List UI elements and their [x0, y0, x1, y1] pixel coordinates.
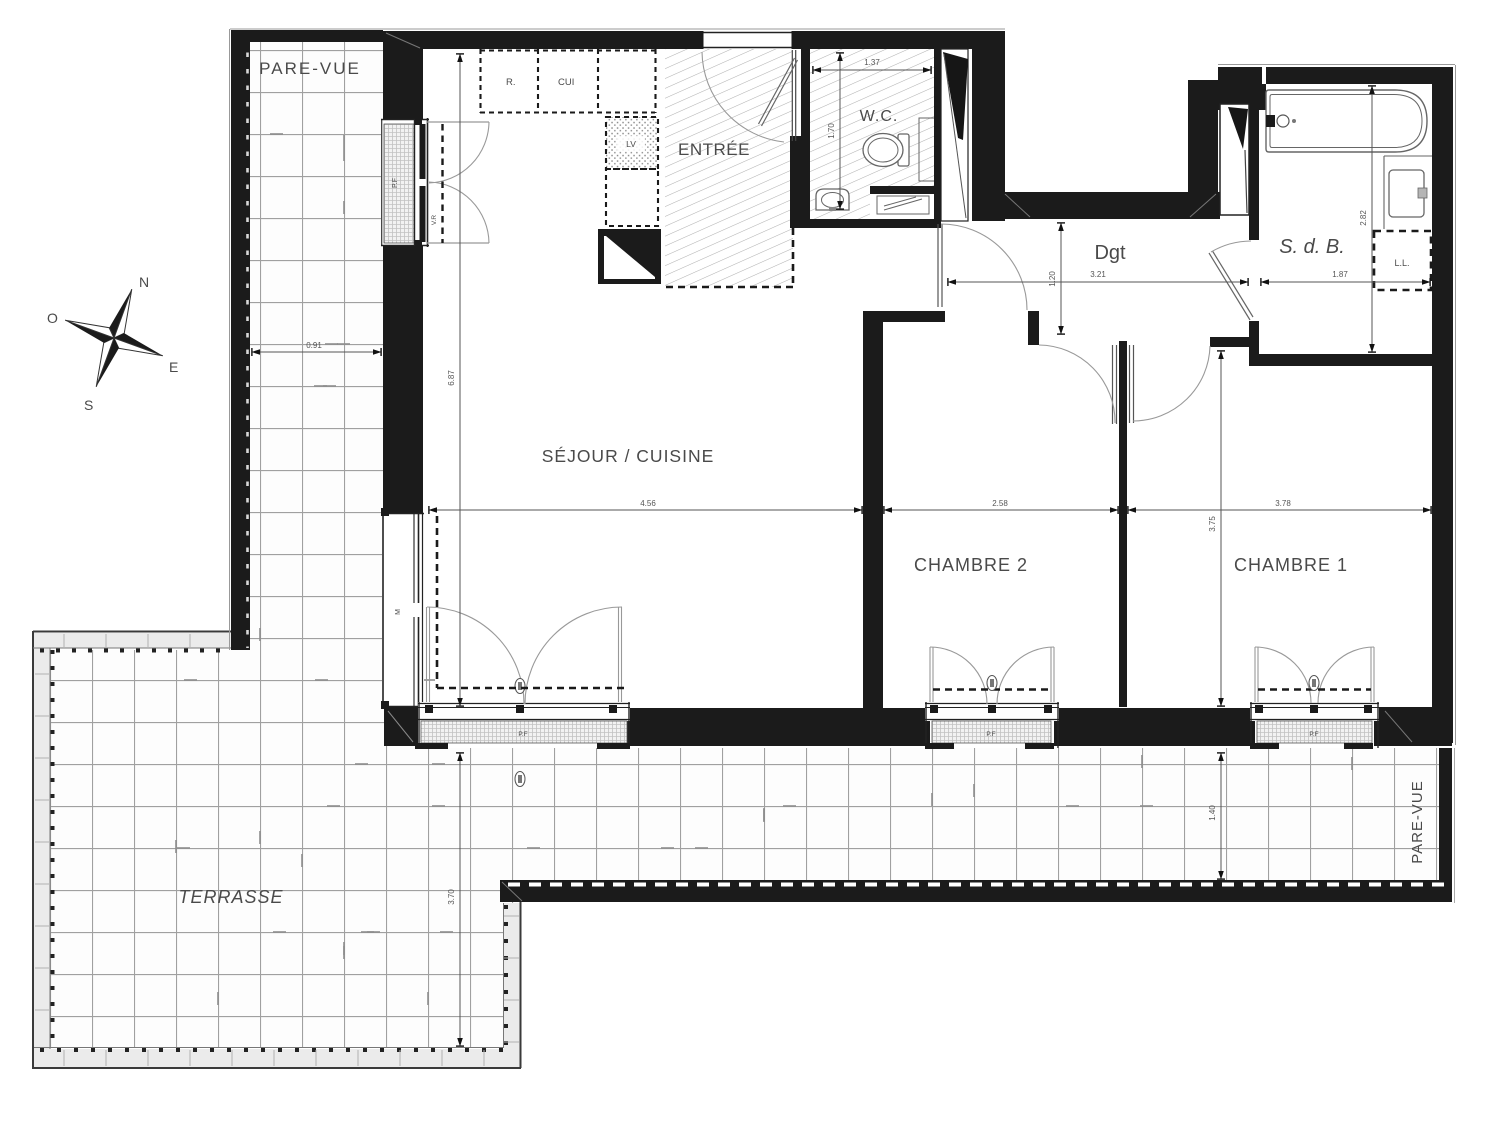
- svg-text:Dgt: Dgt: [1094, 242, 1126, 264]
- svg-text:P.F: P.F: [392, 178, 399, 188]
- svg-text:4.56: 4.56: [640, 499, 656, 508]
- svg-text:P.F: P.F: [986, 731, 995, 738]
- svg-text:3.75: 3.75: [1208, 516, 1217, 532]
- svg-text:1.37: 1.37: [864, 58, 880, 67]
- svg-text:1.87: 1.87: [1332, 270, 1348, 279]
- svg-text:LV: LV: [626, 139, 636, 149]
- svg-text:6.87: 6.87: [447, 370, 456, 386]
- svg-text:1.70: 1.70: [827, 123, 836, 139]
- svg-text:P.F: P.F: [518, 731, 527, 738]
- svg-text:CUI: CUI: [558, 77, 574, 88]
- svg-text:TERRASSE: TERRASSE: [178, 887, 283, 907]
- svg-text:0.91: 0.91: [306, 341, 322, 350]
- svg-text:3.78: 3.78: [1275, 499, 1291, 508]
- svg-text:V.R: V.R: [431, 215, 438, 226]
- svg-text:N: N: [139, 274, 149, 290]
- svg-text:L.L.: L.L.: [1394, 258, 1409, 268]
- svg-text:CHAMBRE 2: CHAMBRE 2: [914, 555, 1028, 575]
- svg-text:3.21: 3.21: [1090, 270, 1106, 279]
- svg-text:1.20: 1.20: [1048, 271, 1057, 287]
- svg-text:M: M: [395, 609, 402, 615]
- svg-text:O: O: [47, 310, 58, 326]
- svg-text:PARE-VUE: PARE-VUE: [1409, 780, 1426, 864]
- svg-text:W.C.: W.C.: [860, 108, 899, 125]
- svg-text:2.82: 2.82: [1359, 210, 1368, 226]
- svg-text:E: E: [169, 359, 178, 375]
- svg-text:CHAMBRE 1: CHAMBRE 1: [1234, 555, 1348, 575]
- svg-text:P.F: P.F: [1309, 731, 1318, 738]
- svg-text:SÉJOUR / CUISINE: SÉJOUR / CUISINE: [542, 446, 715, 466]
- svg-text:S. d. B.: S. d. B.: [1279, 236, 1345, 258]
- svg-text:3.70: 3.70: [447, 889, 456, 905]
- svg-text:2.58: 2.58: [992, 499, 1008, 508]
- svg-text:S: S: [84, 397, 93, 413]
- svg-text:R.: R.: [506, 77, 516, 88]
- svg-text:PARE-VUE: PARE-VUE: [259, 59, 361, 78]
- svg-text:ENTRÉE: ENTRÉE: [678, 140, 750, 159]
- svg-text:1.40: 1.40: [1208, 805, 1217, 821]
